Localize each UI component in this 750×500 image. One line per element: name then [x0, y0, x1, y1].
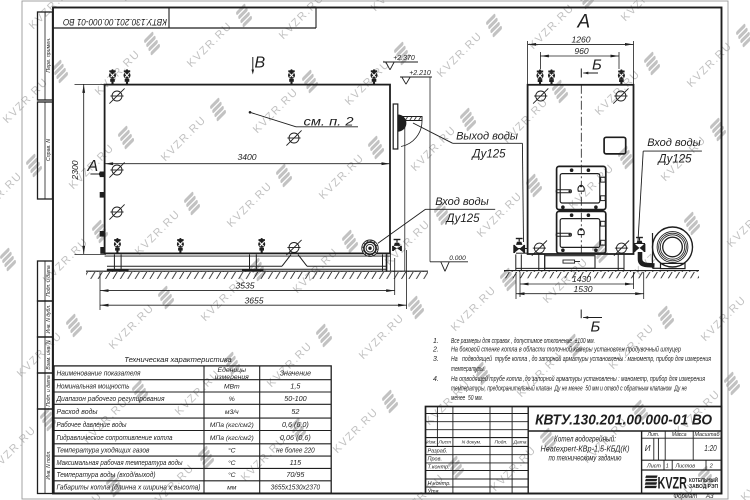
svg-text:0.000: 0.000 [449, 255, 466, 262]
svg-text:мм: мм [227, 485, 237, 492]
svg-text:Инв. N дубл.: Инв. N дубл. [46, 305, 52, 334]
svg-text:м3/ч: м3/ч [225, 409, 239, 416]
svg-text:МПа (кгс/см2): МПа (кгс/см2) [210, 422, 254, 429]
svg-text:960: 960 [574, 46, 589, 56]
svg-text:Листов: Листов [674, 464, 695, 470]
svg-text:Т.контр.: Т.контр. [428, 464, 450, 470]
svg-text:Температура уходящих газов: Температура уходящих газов [57, 447, 150, 455]
svg-text:Heatexpert-КВр-1,5-КБД(К): Heatexpert-КВр-1,5-КБД(К) [541, 445, 630, 454]
svg-text:70/95: 70/95 [286, 470, 305, 479]
svg-text:Гидравлическое сопротивление к: Гидравлическое сопротивление котла [57, 434, 173, 442]
svg-text:0,06 (0,6): 0,06 (0,6) [280, 433, 311, 442]
svg-text:ЗАВОД РЭП: ЗАВОД РЭП [689, 484, 718, 490]
svg-text:температуры, предохранительный: температуры, предохранительный клапан Ду… [451, 385, 687, 393]
svg-text:МПа (кгс/см2): МПа (кгс/см2) [210, 435, 254, 442]
svg-text:Подп. и дата: Подп. и дата [46, 265, 52, 297]
svg-text:Номинальная мощность: Номинальная мощность [57, 383, 130, 390]
svg-text:+2.210: +2.210 [409, 70, 431, 77]
svg-text:Формат: Формат [673, 494, 697, 500]
svg-text:1: 1 [666, 464, 669, 470]
svg-text:52: 52 [291, 407, 299, 416]
svg-text:2.: 2. [432, 346, 439, 353]
svg-text:115: 115 [290, 458, 302, 467]
svg-text:Справ. N: Справ. N [46, 139, 52, 161]
svg-text:2300: 2300 [70, 160, 80, 180]
svg-text:1:20: 1:20 [704, 443, 717, 453]
svg-text:И: И [645, 444, 651, 453]
svg-text:КВТУ.130.201.00.000-01 ВО: КВТУ.130.201.00.000-01 ВО [63, 17, 167, 27]
svg-text:Техническая характеристика: Техническая характеристика [124, 355, 232, 364]
svg-text:Ду125: Ду125 [470, 149, 506, 161]
svg-text:На отводящей трубе котла ,до з: На отводящей трубе котла ,до запорной ар… [451, 375, 705, 383]
svg-text:В: В [255, 55, 266, 72]
svg-text:Масса: Масса [672, 432, 687, 438]
svg-text:+2.370: +2.370 [393, 55, 415, 62]
svg-text:1530: 1530 [573, 284, 592, 294]
svg-text:А: А [87, 158, 99, 175]
svg-text:Значение: Значение [280, 368, 312, 377]
svg-text:Габариты котла (длинна х ширин: Габариты котла (длинна х ширина х высота… [57, 484, 201, 492]
svg-text:Масштаб: Масштаб [695, 432, 720, 438]
svg-text:50-100: 50-100 [284, 394, 306, 403]
svg-text:МВт: МВт [224, 383, 240, 390]
svg-text:по техническому заданию: по техническому заданию [549, 454, 622, 463]
svg-text:1430: 1430 [572, 274, 591, 284]
svg-text:Вход воды: Вход воды [435, 196, 488, 208]
svg-text:см. п. 2: см. п. 2 [304, 114, 354, 128]
svg-text:Лист: Лист [646, 464, 661, 470]
svg-text:2: 2 [709, 464, 713, 470]
svg-text:Перв. примен.: Перв. примен. [46, 37, 52, 72]
svg-text:Лист: Лист [438, 440, 452, 446]
svg-text:4.: 4. [433, 376, 439, 383]
svg-text:3535: 3535 [235, 281, 254, 291]
svg-text:KVZR: KVZR [658, 473, 688, 492]
svg-text:Диапазон рабочего регулировани: Диапазон рабочего регулирования [56, 395, 165, 403]
svg-text:температуры.: температуры. [451, 366, 485, 373]
svg-text:°С: °С [228, 447, 236, 455]
svg-text:Рабочее давление воды: Рабочее давление воды [57, 421, 128, 429]
svg-text:N докум.: N докум. [462, 440, 482, 446]
svg-text:КВТУ.130.201.00.000-01 ВО: КВТУ.130.201.00.000-01 ВО [535, 413, 713, 429]
svg-text:Выход воды: Выход воды [456, 131, 518, 143]
svg-text:3655: 3655 [244, 295, 263, 305]
svg-text:На боковой стенке котла в обла: На боковой стенке котла в области топочн… [451, 345, 681, 353]
svg-text:Разраб.: Разраб. [428, 449, 448, 455]
svg-text:Температура воды (вход/выход): Температура воды (вход/выход) [57, 471, 156, 479]
svg-text:Подп. и дата: Подп. и дата [46, 375, 52, 407]
svg-text:Расход воды: Расход воды [57, 408, 99, 416]
svg-text:Максимальная рабочая температу: Максимальная рабочая температура воды [57, 459, 184, 467]
svg-text:Лит.: Лит. [647, 432, 660, 438]
svg-text:На подводящей трубе котла ,: На подводящей трубе котла , до запорной … [451, 355, 711, 363]
svg-text:3655х1530х2370: 3655х1530х2370 [271, 483, 321, 492]
svg-text:А3: А3 [705, 493, 714, 500]
svg-text:А: А [577, 11, 591, 32]
svg-text:3.: 3. [433, 356, 439, 363]
svg-text:Утв.: Утв. [427, 489, 441, 495]
svg-text:менее 50 мм.: менее 50 мм. [451, 395, 483, 402]
svg-text:0,6 (6,0): 0,6 (6,0) [282, 420, 309, 429]
svg-text:Инв. N подл.: Инв. N подл. [46, 450, 52, 479]
svg-text:Дата: Дата [513, 440, 527, 446]
svg-text:Н.контр.: Н.контр. [428, 481, 451, 487]
svg-text:Взам. инв. N: Взам. инв. N [46, 340, 52, 370]
svg-text:Подп.: Подп. [494, 440, 507, 446]
svg-text:Наименование показателя: Наименование показателя [57, 370, 141, 377]
svg-text:°С: °С [228, 471, 236, 479]
svg-text:Ду125: Ду125 [444, 213, 480, 225]
svg-text:Котел водогрейный:: Котел водогрейный: [554, 435, 616, 444]
svg-text:%: % [229, 396, 235, 403]
svg-text:Б: Б [592, 57, 602, 74]
svg-text:1,5: 1,5 [290, 381, 301, 390]
svg-text:измерения: измерения [215, 374, 249, 381]
svg-text:Ду125: Ду125 [656, 154, 692, 166]
svg-text:Изм.: Изм. [426, 440, 436, 446]
svg-text:Б: Б [591, 319, 601, 336]
svg-text:3400: 3400 [237, 152, 256, 162]
svg-text:Все размеры для справок , допу: Все размеры для справок , допустимое отк… [451, 337, 595, 345]
svg-text:Пров.: Пров. [428, 457, 443, 463]
svg-text:1260: 1260 [571, 35, 590, 45]
svg-text:Вход воды: Вход воды [647, 137, 700, 149]
svg-text:1.: 1. [433, 338, 439, 345]
svg-text:КОТЕЛЬНЫЙ: КОТЕЛЬНЫЙ [689, 476, 718, 484]
svg-text:не более 220: не более 220 [276, 446, 315, 455]
svg-text:°С: °С [228, 459, 236, 467]
